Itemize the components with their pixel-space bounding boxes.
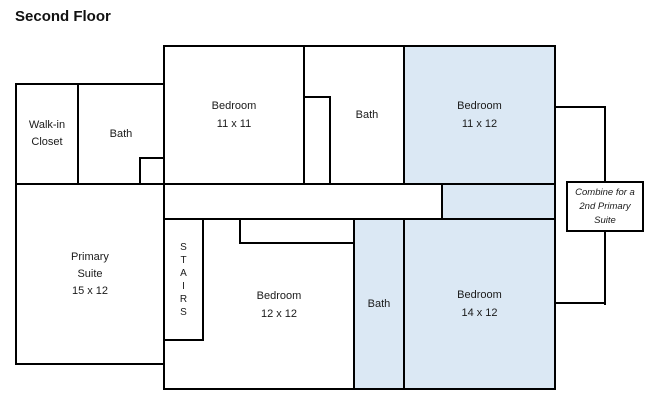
bracket-line-bottom [554,302,606,304]
room-label: Bath [356,107,379,124]
wall-notch [139,157,165,185]
hallway-highlighted-segment [441,183,556,220]
room-bedroom-11x11: Bedroom 11 x 11 [163,45,305,185]
room-bath-lower: Bath [353,218,405,390]
bracket-line-top [554,106,606,108]
room-label: 14 x 12 [461,304,497,322]
room-label: Bedroom [212,97,257,115]
room-label: 11 x 12 [462,115,497,133]
wall-nook [303,96,331,185]
second-floor-plan: Second Floor Walk-in Closet Bath Bedroom… [0,0,657,411]
annotation-combine-note: Combine for a 2nd Primary Suite [566,181,644,232]
annotation-line: Combine for a [575,186,635,200]
stairs-letter: I [182,280,185,293]
room-label: Walk-in [29,117,65,134]
room-label: Primary [71,249,109,266]
room-stairs: S T A I R S [163,218,204,341]
stairs-letter: S [180,306,187,319]
room-label: Bedroom [457,286,502,304]
annotation-line: Suite [594,214,616,228]
room-label: 15 x 12 [72,283,108,300]
room-label: Closet [31,134,62,151]
annotation-line: 2nd Primary [579,200,630,214]
stairs-letter: A [180,267,187,280]
stairs-letter: S [180,241,187,254]
hallway [163,183,443,220]
stairs-letter: R [180,293,187,306]
room-bedroom-12x12-label: Bedroom 12 x 12 [204,287,354,323]
room-bedroom-11x12: Bedroom 11 x 12 [403,45,556,185]
room-label: Bedroom [204,287,354,305]
room-label: 11 x 11 [217,115,251,133]
stairs-letter: T [180,254,186,267]
room-label: Bedroom [457,97,502,115]
room-walk-in-closet: Walk-in Closet [15,83,79,185]
room-bedroom-14x12: Bedroom 14 x 12 [403,218,556,390]
room-label: 12 x 12 [204,305,354,323]
room-label: Bath [368,296,391,313]
room-label: Bath [110,126,133,143]
room-label: Suite [77,266,102,283]
room-primary-suite: Primary Suite 15 x 12 [15,183,165,365]
closet-strip [239,218,355,244]
page-title: Second Floor [15,8,111,25]
